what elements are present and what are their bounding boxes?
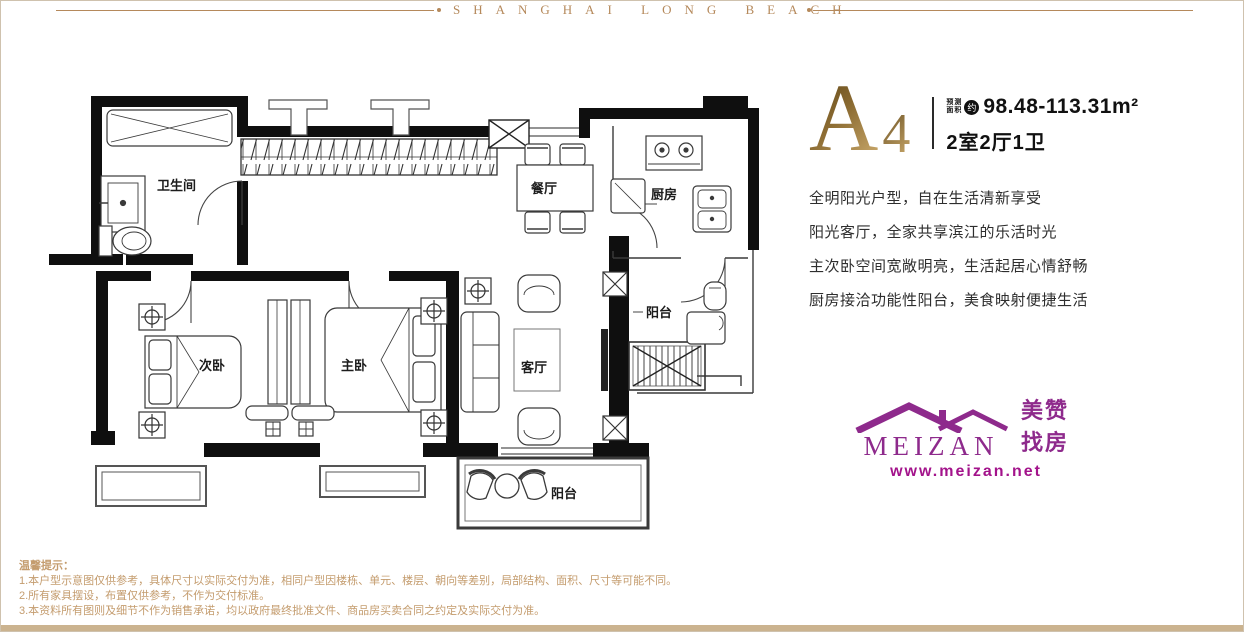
logo-roof-icon <box>853 399 1009 433</box>
room-label-living-room: 客厅 <box>521 360 547 375</box>
note-line: 2.所有家具摆设，布置仅供参考，不作为交付标准。 <box>19 589 919 604</box>
room-label-service-balcony: 阳台 <box>646 305 672 320</box>
area-prefix: 预测 面积 <box>946 99 962 115</box>
disclaimer-notes: 温馨提示： 1.本户型示意图仅供参考，具体尺寸以实际交付为准，相同户型因楼栋、单… <box>19 559 919 619</box>
header-rule-right <box>813 10 1193 11</box>
column-marker-icon <box>421 410 447 436</box>
column-marker-icon <box>421 298 447 324</box>
balcony-chair-left <box>467 473 493 499</box>
unit-number: 4 <box>882 111 910 157</box>
room-label-dining: 餐厅 <box>530 181 557 196</box>
secondary-bed <box>145 336 241 408</box>
tv <box>601 329 608 391</box>
description-line: 厨房接洽功能性阳台，美食映射便捷生活 <box>809 293 1139 308</box>
room-label-south-balcony: 阳台 <box>551 486 577 501</box>
pilaster-x-icon <box>603 272 627 296</box>
pilaster-x-icon <box>603 416 627 440</box>
description-block: 全明阳光户型，自在生活清新享受 阳光客厅，全家共享滨江的乐活时光 主次卧空间宽敞… <box>809 191 1139 327</box>
logo-tagline: 美赞找房 <box>1021 393 1073 457</box>
header-dot-right-icon <box>807 8 811 12</box>
note-line: 1.本户型示意图仅供参考，具体尺寸以实际交付为准，相同户型因楼栋、单元、楼层、朝… <box>19 574 919 589</box>
floor-plan: 卫生间 餐厅 厨房 阳台 次卧 主卧 客厅 阳台 <box>41 86 771 536</box>
header-dot-left-icon <box>437 8 441 12</box>
meizan-logo: MEIZAN 美赞找房 www.meizan.net <box>853 393 1073 481</box>
description-line: 阳光客厅，全家共享滨江的乐活时光 <box>809 225 1139 240</box>
description-line: 全明阳光户型，自在生活清新享受 <box>809 191 1139 206</box>
header-rule-left <box>56 10 434 11</box>
logo-website: www.meizan.net <box>859 463 1073 481</box>
room-label-kitchen: 厨房 <box>651 187 677 202</box>
toilet-tank <box>99 226 112 256</box>
balcony-chair-right <box>521 473 547 499</box>
column-marker-icon <box>139 412 165 438</box>
column-marker-icon <box>139 304 165 330</box>
water-heater <box>704 282 726 310</box>
kitchen-fixtures <box>611 136 731 232</box>
note-line: 3.本资料所有图则及细节不作为销售承诺，均以政府最终批准文件、商品房买卖合同之约… <box>19 604 919 619</box>
description-line: 主次卧空间宽敞明亮，生活起居心情舒畅 <box>809 259 1139 274</box>
divider <box>932 97 934 149</box>
balcony-furniture <box>467 470 547 499</box>
stove <box>646 136 702 170</box>
service-balcony-fixtures <box>687 282 726 344</box>
approx-badge: 约 <box>964 100 979 115</box>
layout-text: 2室2厅1卫 <box>946 126 1138 155</box>
shaft-box <box>489 120 529 148</box>
balcony-table <box>495 474 519 498</box>
unit-title: A 4 预测 面积 约 98.48-113.31m² 2室2厅1卫 <box>809 79 1139 157</box>
flue-platform <box>629 342 705 390</box>
room-label-master-bedroom: 主卧 <box>341 358 367 373</box>
brand-header: SHANGHAI LONG BEACH <box>453 2 809 18</box>
wardrobes <box>246 300 334 436</box>
room-label-secondary-bedroom: 次卧 <box>199 358 225 373</box>
brochure-page: SHANGHAI LONG BEACH <box>0 0 1244 632</box>
area-value: 98.48-113.31m² <box>983 95 1138 119</box>
corridor-wardrobe <box>241 139 497 175</box>
room-label-bathroom: 卫生间 <box>157 178 196 193</box>
notes-title: 温馨提示： <box>19 559 919 574</box>
bottom-accent-bar <box>1 625 1243 631</box>
sofa <box>461 312 499 412</box>
logo-name: MEIZAN <box>864 433 999 459</box>
unit-letter: A <box>809 79 878 157</box>
column-marker-icon <box>465 278 491 304</box>
